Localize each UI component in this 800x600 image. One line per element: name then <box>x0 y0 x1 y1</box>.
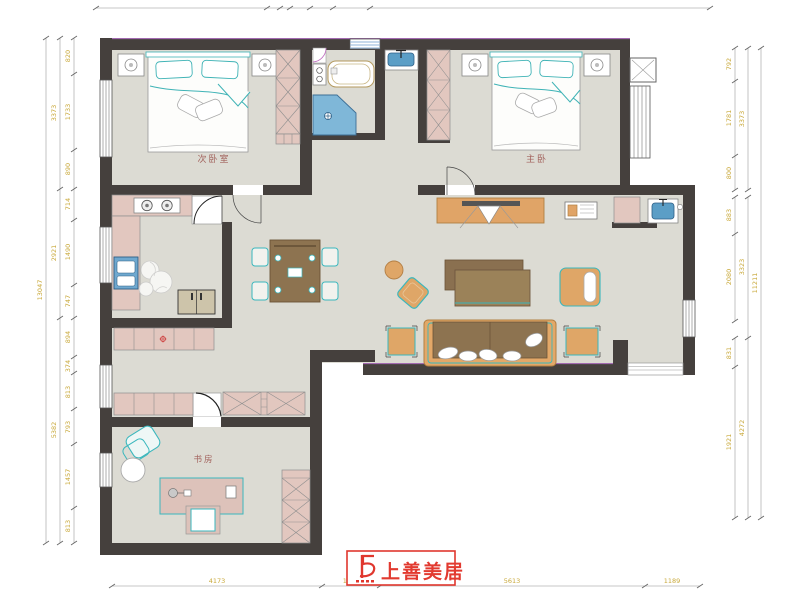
svg-text:2921: 2921 <box>50 245 58 262</box>
dining-chair <box>252 248 268 266</box>
side-table <box>386 326 417 357</box>
round-side-table <box>121 458 145 482</box>
floor-plan-drawing: 次卧室 <box>0 0 800 600</box>
room-label-study: 书房 <box>193 454 214 465</box>
nightstand <box>118 54 144 76</box>
fridge <box>178 290 215 314</box>
svg-text:820: 820 <box>64 50 72 62</box>
svg-text:793: 793 <box>64 421 72 433</box>
window-corridor-west <box>100 365 112 408</box>
window-study-west <box>100 453 112 487</box>
svg-text:374: 374 <box>64 360 72 372</box>
brand-logo-text: 上善美居 <box>381 560 465 583</box>
svg-text:747: 747 <box>64 295 72 307</box>
window-kitchen-west <box>100 227 112 283</box>
wardrobe-secondary <box>276 50 300 144</box>
svg-text:4272: 4272 <box>738 420 746 437</box>
window-entry-top <box>350 39 380 49</box>
svg-text:3323: 3323 <box>738 259 746 276</box>
svg-text:894: 894 <box>64 331 72 343</box>
kitchen-sink <box>114 257 138 289</box>
coffee-table <box>445 260 530 306</box>
floor-plan-canvas: 次卧室 <box>0 0 800 600</box>
window-bedroom2-west <box>100 80 112 157</box>
room-label-secondary-bedroom: 次卧室 <box>197 153 230 165</box>
svg-text:813: 813 <box>64 520 72 532</box>
stove <box>134 198 180 213</box>
dimensions-left: 820 1733 890 714 1490 747 894 374 813 79… <box>36 36 77 545</box>
hall-basin <box>385 50 418 70</box>
svg-text:1733: 1733 <box>64 104 72 121</box>
svg-text:1921: 1921 <box>725 434 733 451</box>
washer <box>313 64 326 85</box>
svg-text:831: 831 <box>725 347 733 359</box>
svg-text:1189: 1189 <box>664 577 681 585</box>
armchair <box>560 268 600 306</box>
dining-chair <box>252 282 268 300</box>
desk-chair <box>186 506 220 534</box>
bed-master <box>490 52 582 150</box>
svg-text:883: 883 <box>725 209 733 221</box>
floor-cushion-round <box>385 261 403 279</box>
svg-text:714: 714 <box>64 198 72 210</box>
svg-text:813: 813 <box>64 386 72 398</box>
balcony-door-south <box>628 363 683 375</box>
svg-text:800: 800 <box>725 167 733 179</box>
ac-platform <box>630 58 656 82</box>
svg-text:1457: 1457 <box>64 469 72 486</box>
dimensions-right: 792 1781 800 883 2080 831 1921 3373 3323… <box>725 46 764 520</box>
brand-logo: 上善美居 <box>347 551 465 585</box>
door-bathroom <box>313 48 326 63</box>
svg-text:2080: 2080 <box>725 269 733 286</box>
svg-text:3373: 3373 <box>50 105 58 122</box>
door-kitchen <box>192 196 222 224</box>
bay-window-master-east <box>630 86 650 158</box>
svg-text:5382: 5382 <box>50 422 58 439</box>
nightstand <box>252 54 278 76</box>
dimensions-top <box>93 6 713 10</box>
corridor-wardrobe <box>223 392 305 415</box>
svg-text:890: 890 <box>64 163 72 175</box>
nightstand <box>584 54 610 76</box>
window-living-east <box>683 300 695 337</box>
dining-chair <box>322 248 338 266</box>
svg-text:13047: 13047 <box>36 280 44 301</box>
cabinet-row <box>114 328 214 350</box>
svg-text:11211: 11211 <box>751 273 759 294</box>
svg-text:1490: 1490 <box>64 244 72 261</box>
wardrobe-master <box>427 50 450 140</box>
svg-text:1781: 1781 <box>725 110 733 127</box>
svg-text:792: 792 <box>725 58 733 70</box>
side-table <box>564 326 600 357</box>
bed-secondary <box>146 52 250 152</box>
svg-text:5613: 5613 <box>504 577 521 585</box>
bookshelf <box>282 470 310 543</box>
room-label-master-bedroom: 主卧 <box>526 153 548 165</box>
cabinet-row <box>114 393 193 415</box>
dining-table <box>270 240 320 302</box>
svg-text:4173: 4173 <box>209 577 226 585</box>
console-table <box>565 202 597 219</box>
nightstand <box>462 54 488 76</box>
bathtub <box>328 61 374 87</box>
door-study <box>193 393 221 427</box>
svg-text:3373: 3373 <box>738 111 746 128</box>
dining-chair <box>322 282 338 300</box>
washroom <box>614 197 683 223</box>
sofa <box>424 320 556 366</box>
